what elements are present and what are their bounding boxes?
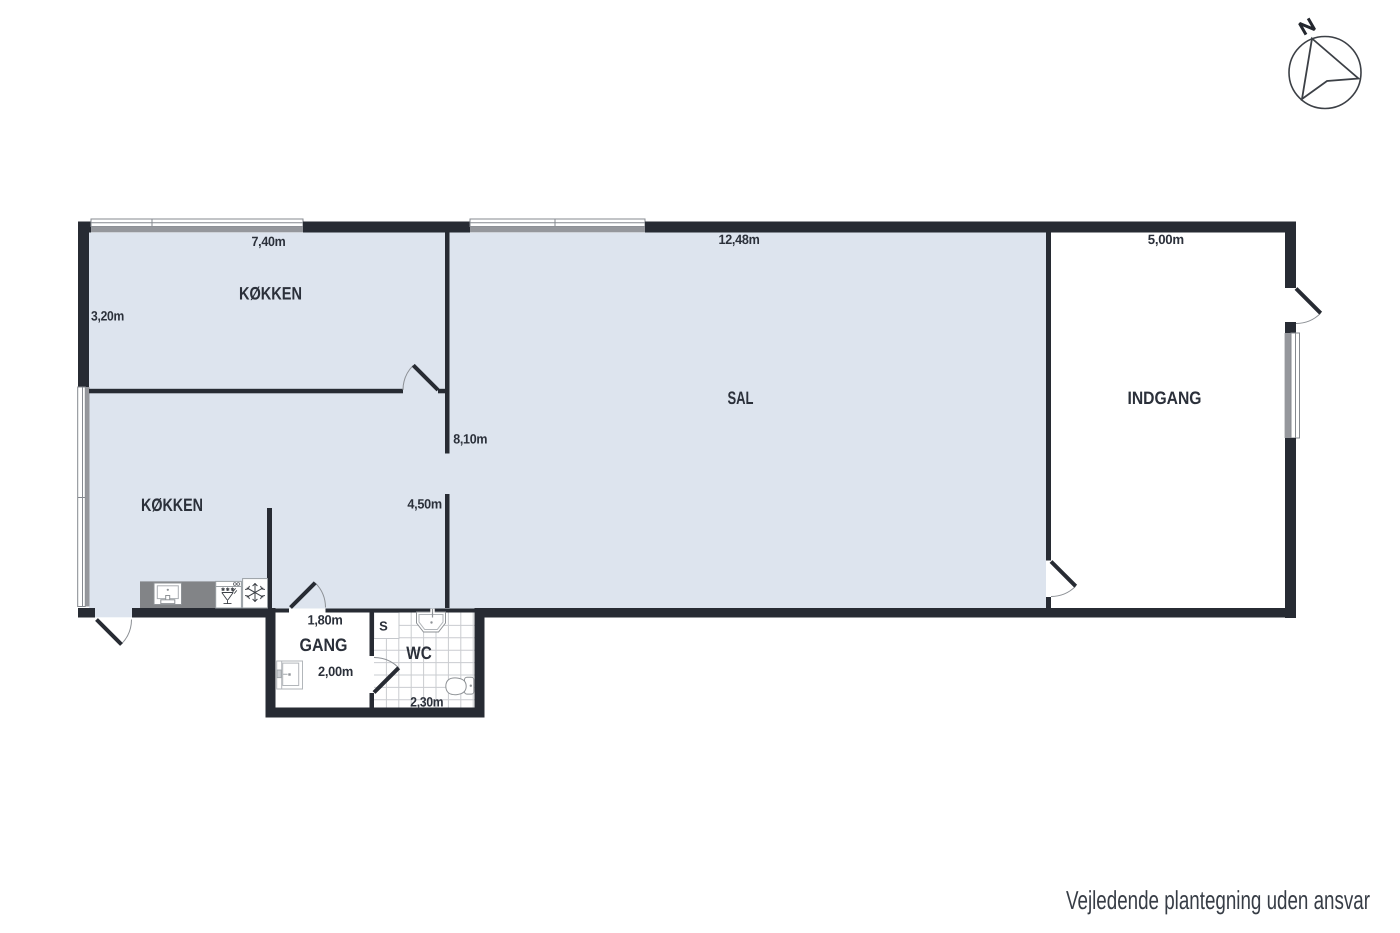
svg-text:5,00m: 5,00m: [1148, 232, 1184, 247]
svg-text:8,10m: 8,10m: [453, 431, 487, 446]
svg-text:12,48m: 12,48m: [719, 232, 760, 247]
svg-text:WC: WC: [406, 643, 432, 663]
svg-text:2,30m: 2,30m: [410, 694, 443, 709]
svg-text:KØKKEN: KØKKEN: [141, 495, 203, 515]
svg-text:Vejledende plantegning uden an: Vejledende plantegning uden ansvar: [1066, 885, 1370, 915]
svg-text:1,80m: 1,80m: [308, 613, 343, 628]
svg-text:2,00m: 2,00m: [318, 664, 353, 679]
svg-text:GANG: GANG: [300, 635, 348, 655]
svg-text:INDGANG: INDGANG: [1128, 388, 1202, 408]
svg-text:SAL: SAL: [728, 388, 754, 408]
svg-text:7,40m: 7,40m: [252, 234, 286, 249]
svg-text:S: S: [379, 619, 388, 634]
svg-text:KØKKEN: KØKKEN: [239, 284, 302, 304]
svg-text:3,20m: 3,20m: [91, 308, 124, 323]
svg-text:4,50m: 4,50m: [407, 496, 442, 511]
